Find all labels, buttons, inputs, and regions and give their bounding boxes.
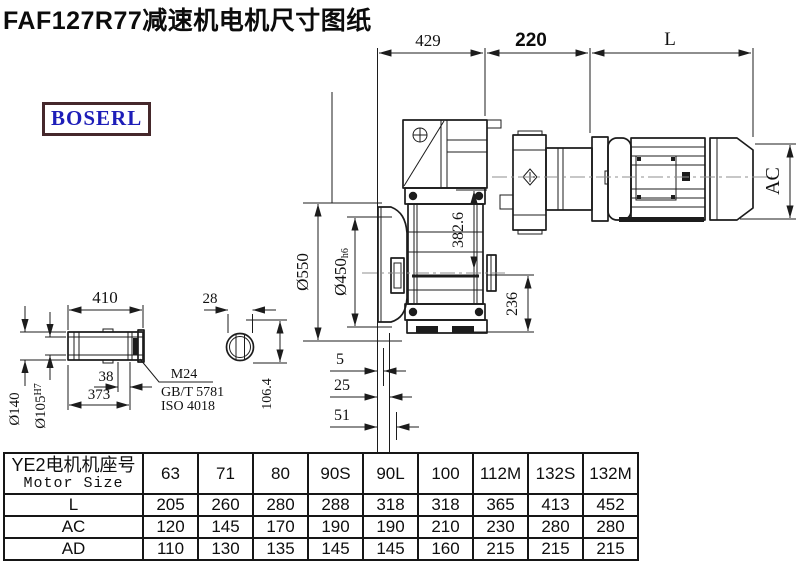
table-cell: 170 xyxy=(253,516,308,538)
motor-size-label-en: Motor Size xyxy=(5,475,142,492)
table-cell: 288 xyxy=(308,494,363,516)
table-cell: 452 xyxy=(583,494,638,516)
note-iso: ISO 4018 xyxy=(161,399,215,414)
table-row-AC: AC 120 145 170 190 190 210 230 280 280 xyxy=(4,516,638,538)
note-m24: M24 xyxy=(171,367,197,382)
table-cell: 205 xyxy=(143,494,198,516)
dim-51-label: 51 xyxy=(334,407,350,424)
table-cell: 280 xyxy=(583,516,638,538)
motor xyxy=(362,138,772,273)
table-cell: 190 xyxy=(308,516,363,538)
shaft-detail: 410 Ø140 Ø105H7 38 373 M24 GB/T 5781 ISO… xyxy=(7,288,224,429)
dim-5-label: 5 xyxy=(336,351,344,368)
diameter-dimensions: Ø550 Ø450h6 xyxy=(293,203,402,341)
table-cell: 365 xyxy=(473,494,528,516)
table-cell: 318 xyxy=(363,494,418,516)
table-cell: 413 xyxy=(528,494,583,516)
col-header: 80 xyxy=(253,453,308,494)
col-header: 63 xyxy=(143,453,198,494)
col-header: 132S xyxy=(528,453,583,494)
dim-373-label: 373 xyxy=(88,387,111,403)
table-cell: 120 xyxy=(143,516,198,538)
dim-382-label: 382.6 xyxy=(450,212,467,248)
table-corner-cell: YE2电机机座号 Motor Size xyxy=(4,453,143,494)
dim-AC-label: AC xyxy=(762,167,784,195)
row-label: AC xyxy=(4,516,143,538)
table-cell: 190 xyxy=(363,516,418,538)
table-cell: 280 xyxy=(253,494,308,516)
col-header: 100 xyxy=(418,453,473,494)
dim-410-label: 410 xyxy=(92,288,118,307)
dim-550-label: Ø550 xyxy=(293,253,312,291)
table-cell: 210 xyxy=(418,516,473,538)
col-header: 90S xyxy=(308,453,363,494)
dim-140-label: Ø140 xyxy=(7,392,23,425)
vertical-dimensions: 382.6 236 AC xyxy=(450,144,796,332)
col-header: 90L xyxy=(363,453,418,494)
table-cell: 280 xyxy=(528,516,583,538)
dim-236-label: 236 xyxy=(504,292,521,316)
dim-450-label: Ø450h6 xyxy=(331,248,351,296)
row-label: L xyxy=(4,494,143,516)
table-cell: 318 xyxy=(418,494,473,516)
dim-220-label: 220 xyxy=(515,30,547,51)
dim-106-label: 106.4 xyxy=(260,378,275,410)
chain-dimensions: 5 25 51 xyxy=(330,205,419,455)
dim-38-label: 38 xyxy=(99,369,114,385)
motor-size-label-cn: YE2电机机座号 xyxy=(5,455,142,475)
dim-25-label: 25 xyxy=(334,377,350,394)
motor-size-table: YE2电机机座号 Motor Size 63 71 80 90S 90L 100… xyxy=(3,452,639,561)
motor-adapter xyxy=(500,131,608,234)
table-header-row: YE2电机机座号 Motor Size 63 71 80 90S 90L 100… xyxy=(4,453,638,494)
table-cell: 230 xyxy=(473,516,528,538)
col-header: 132M xyxy=(583,453,638,494)
table-row-L: L 205 260 280 288 318 318 365 413 452 xyxy=(4,494,638,516)
output-flange xyxy=(378,207,407,322)
dim-429-label: 429 xyxy=(415,31,441,50)
dim-L-label: L xyxy=(664,29,676,50)
dim-105-label: Ø105H7 xyxy=(33,383,49,429)
col-header: 112M xyxy=(473,453,528,494)
col-header: 71 xyxy=(198,453,253,494)
table-cell: 145 xyxy=(198,516,253,538)
dim-28-label: 28 xyxy=(203,291,218,307)
table-cell: 260 xyxy=(198,494,253,516)
note-gbt: GB/T 5781 xyxy=(161,385,224,400)
